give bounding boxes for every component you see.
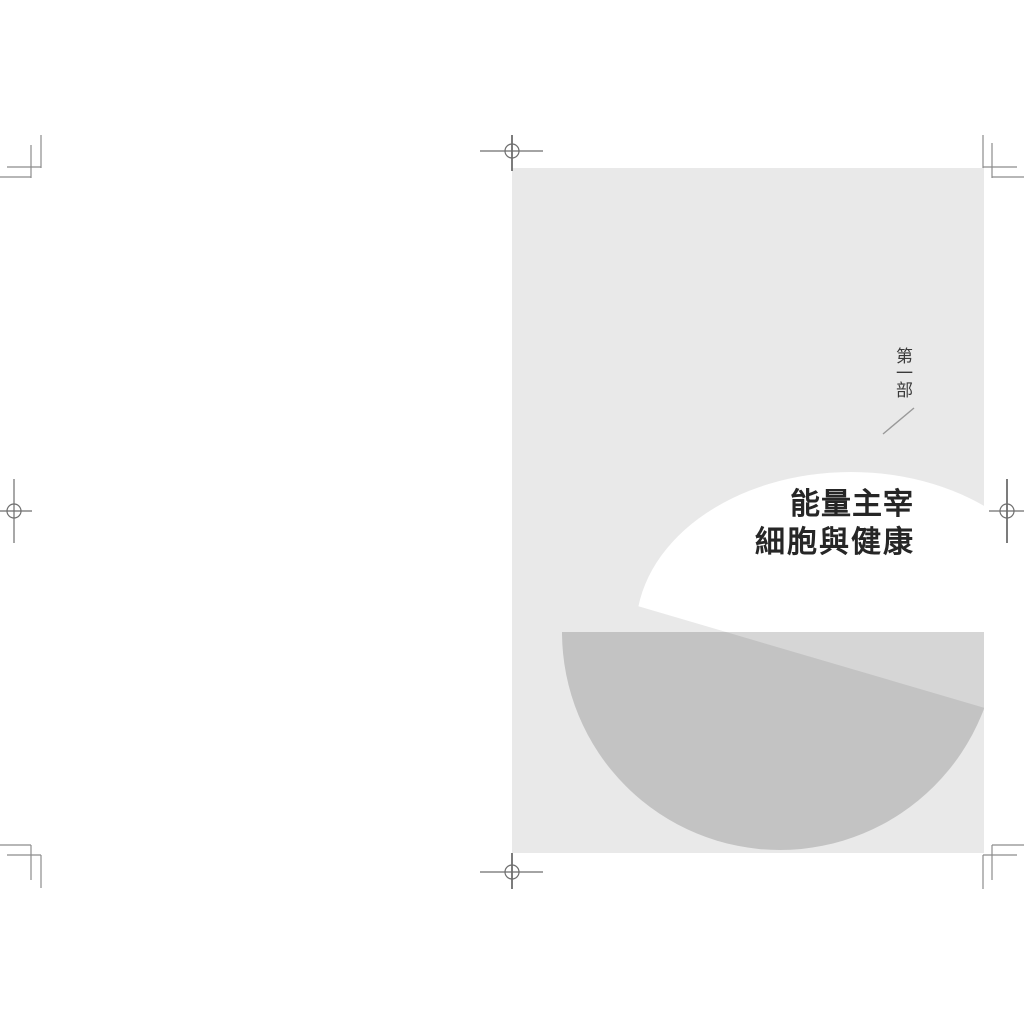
trim-mark-top-right	[983, 135, 1024, 178]
trim-mark-bottom-right	[983, 845, 1024, 889]
trim-mark-bottom-left	[0, 845, 41, 888]
registration-mark-left	[0, 479, 32, 543]
registration-mark-bottom	[480, 853, 543, 889]
title-line-2: 細胞與健康	[755, 527, 915, 559]
registration-mark-top	[480, 135, 543, 171]
part-number-label: 第一部	[889, 347, 911, 405]
trim-mark-top-left	[0, 135, 41, 178]
registration-mark-right	[989, 479, 1024, 543]
print-proof-sheet: 第一部 能量主宰 細胞與健康	[0, 0, 1024, 1024]
title-line-1: 能量主宰	[790, 489, 914, 521]
